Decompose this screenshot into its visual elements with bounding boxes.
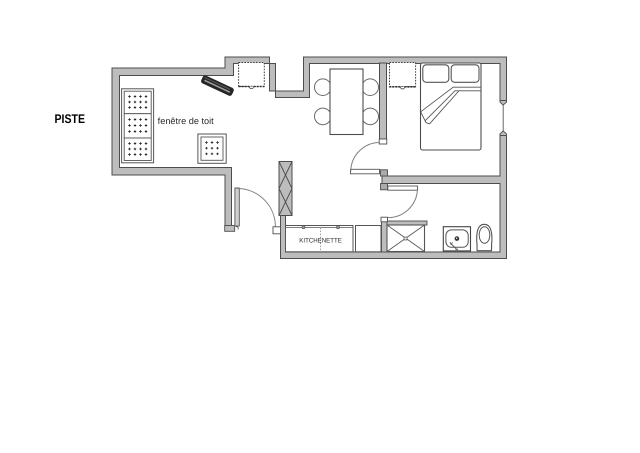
svg-text:fenêtre de toit: fenêtre de toit xyxy=(158,116,214,126)
svg-text:KITCHENETTE: KITCHENETTE xyxy=(299,238,342,245)
svg-text:PISTE: PISTE xyxy=(55,112,86,126)
